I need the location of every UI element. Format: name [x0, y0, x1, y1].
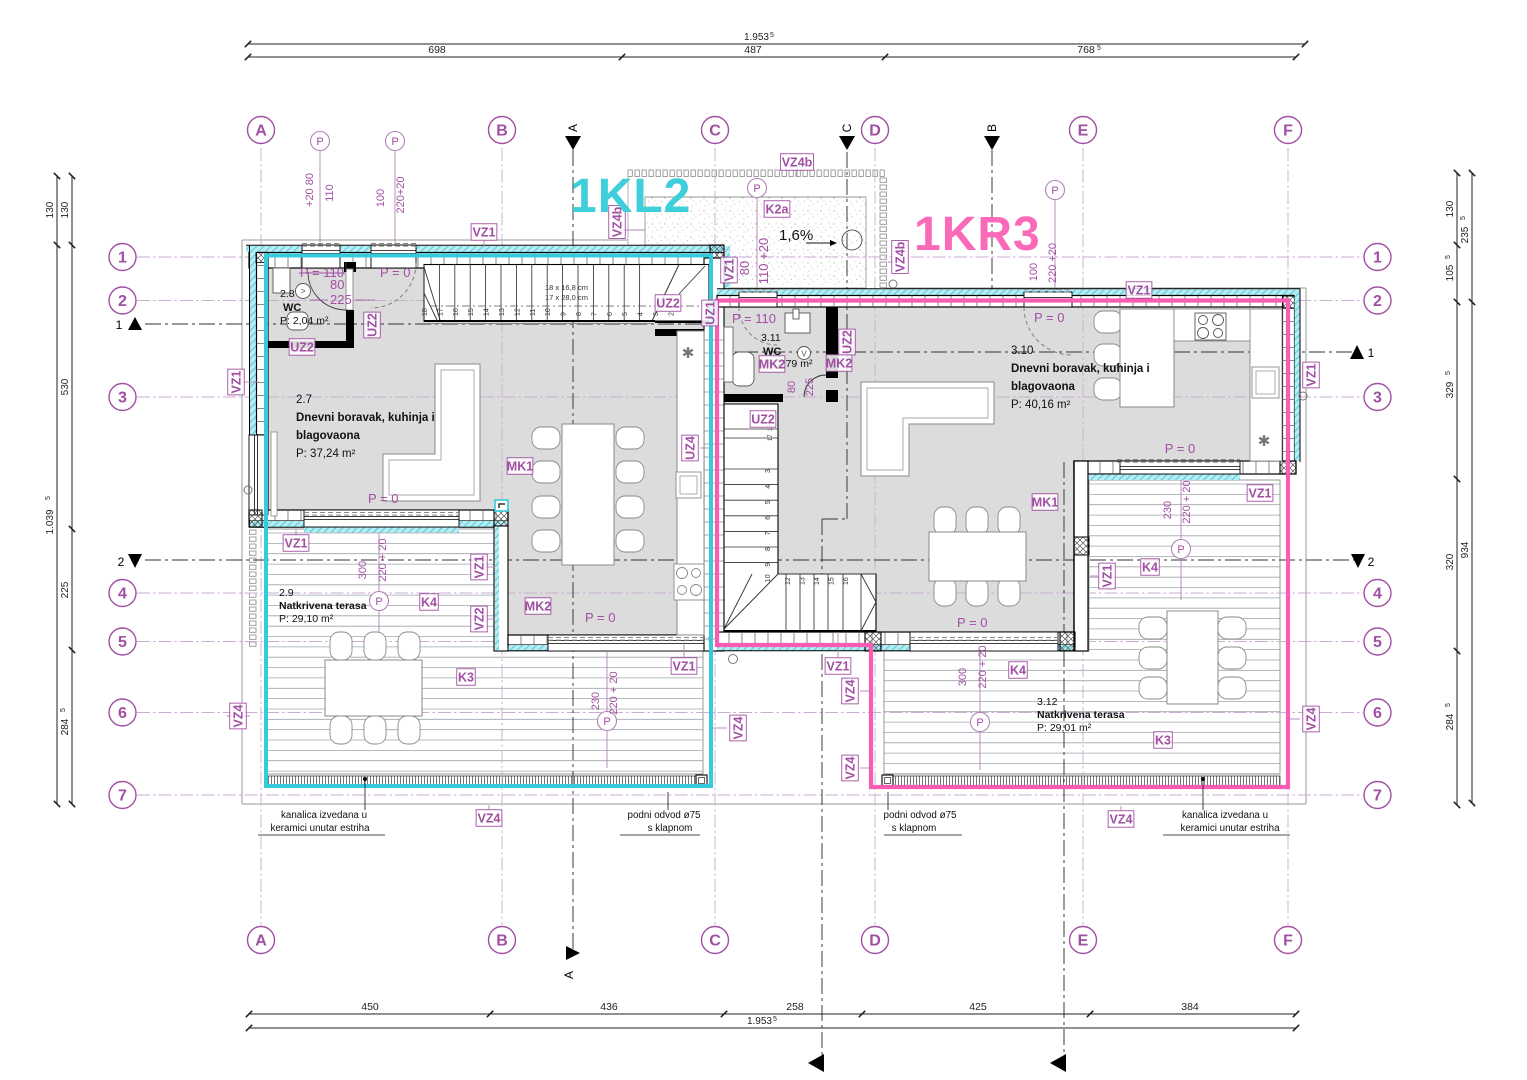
svg-text:8: 8: [576, 312, 583, 316]
svg-text:7: 7: [765, 531, 772, 535]
svg-text:P: P: [753, 183, 760, 195]
svg-text:blagovaona: blagovaona: [1011, 381, 1076, 393]
svg-text:1.953: 1.953: [747, 1016, 772, 1027]
svg-text:P = 110: P = 110: [732, 311, 776, 326]
svg-text:220 +20: 220 +20: [1047, 243, 1059, 283]
svg-text:VZ1: VZ1: [723, 258, 737, 281]
svg-text:5: 5: [1460, 216, 1467, 220]
svg-text:5: 5: [45, 496, 52, 500]
svg-text:K4: K4: [421, 596, 437, 610]
svg-text:P: P: [1051, 185, 1058, 197]
svg-text:5: 5: [60, 708, 67, 712]
svg-text:18: 18: [422, 308, 429, 316]
svg-text:7: 7: [1373, 788, 1382, 805]
svg-text:2.7: 2.7: [296, 394, 312, 406]
svg-text:UZ2: UZ2: [290, 341, 314, 355]
svg-text:2: 2: [118, 555, 125, 569]
svg-text:VZ1: VZ1: [827, 660, 850, 674]
svg-text:530: 530: [60, 378, 71, 395]
svg-text:K3: K3: [458, 671, 474, 685]
svg-text:WC: WC: [283, 302, 301, 314]
svg-text:3.10: 3.10: [1011, 345, 1033, 357]
svg-text:225: 225: [804, 378, 816, 396]
svg-text:E: E: [1078, 933, 1089, 950]
svg-text:P: 29,01 m²: P: 29,01 m²: [1037, 722, 1092, 734]
svg-text:110: 110: [324, 184, 336, 202]
svg-text:5: 5: [1373, 634, 1382, 651]
svg-text:100: 100: [375, 189, 387, 207]
svg-text:VZ4: VZ4: [844, 756, 858, 779]
svg-text:+20 80: +20 80: [304, 173, 316, 207]
svg-text:P = 0: P = 0: [368, 491, 398, 506]
svg-text:220 + 20: 220 + 20: [377, 538, 389, 581]
svg-text:15: 15: [468, 308, 475, 316]
svg-text:105: 105: [1445, 264, 1456, 281]
svg-text:225: 225: [330, 292, 352, 307]
svg-text:podni odvod ø75: podni odvod ø75: [628, 810, 702, 821]
svg-text:1: 1: [1373, 250, 1382, 267]
svg-text:768: 768: [1077, 44, 1095, 56]
svg-text:K4: K4: [1010, 664, 1026, 678]
svg-text:80: 80: [786, 381, 798, 393]
svg-text:5: 5: [765, 500, 772, 504]
svg-text:14: 14: [814, 577, 821, 585]
svg-text:✱: ✱: [1258, 433, 1271, 450]
svg-text:s klapnom: s klapnom: [892, 823, 937, 834]
svg-text:K3: K3: [1155, 734, 1171, 748]
svg-text:VZ4: VZ4: [232, 704, 246, 727]
svg-text:MK1: MK1: [1032, 496, 1058, 510]
svg-text:D: D: [869, 123, 881, 140]
svg-text:5: 5: [118, 634, 127, 651]
svg-text:Dnevni boravak, kuhinja i: Dnevni boravak, kuhinja i: [296, 412, 435, 424]
svg-text:VZ4: VZ4: [478, 812, 501, 826]
svg-text:225: 225: [60, 581, 71, 598]
svg-text:10: 10: [545, 308, 552, 316]
svg-text:MK2: MK2: [525, 600, 551, 614]
svg-text:VZ1: VZ1: [1249, 487, 1272, 501]
svg-text:320: 320: [1445, 553, 1456, 570]
svg-text:5: 5: [770, 32, 774, 39]
svg-text:1: 1: [1368, 346, 1375, 360]
svg-text:7: 7: [591, 312, 598, 316]
svg-text:100: 100: [1028, 263, 1040, 281]
svg-text:16: 16: [453, 308, 460, 316]
svg-text:B: B: [496, 123, 508, 140]
svg-text:A: A: [566, 124, 580, 132]
svg-text:VZ1: VZ1: [473, 226, 496, 240]
svg-text:MK1: MK1: [507, 460, 533, 474]
svg-text:A: A: [255, 123, 267, 140]
svg-text:18 x 16,8 cm: 18 x 16,8 cm: [545, 283, 588, 292]
svg-text:keramici unutar estriha: keramici unutar estriha: [270, 823, 370, 834]
svg-text:11: 11: [530, 309, 537, 316]
svg-text:6: 6: [765, 516, 772, 520]
svg-text:K2a: K2a: [766, 203, 790, 217]
svg-text:1KR3: 1KR3: [914, 208, 1041, 261]
svg-text:284: 284: [1445, 713, 1456, 730]
svg-text:P: 40,16 m²: P: 40,16 m²: [1011, 399, 1071, 411]
svg-text:1.039: 1.039: [45, 509, 56, 534]
svg-text:3: 3: [765, 469, 772, 473]
svg-text:P = 0: P = 0: [1034, 310, 1064, 325]
svg-text:3: 3: [653, 312, 660, 316]
svg-text:3: 3: [118, 390, 127, 407]
svg-text:A: A: [562, 971, 576, 979]
svg-text:487: 487: [744, 44, 762, 56]
svg-text:698: 698: [428, 44, 446, 56]
svg-text:P: P: [976, 717, 983, 729]
svg-text:P: P: [391, 136, 398, 148]
svg-text:5: 5: [1097, 45, 1101, 52]
svg-text:450: 450: [361, 1001, 379, 1013]
svg-text:VZ4: VZ4: [844, 679, 858, 702]
svg-text:2.9: 2.9: [279, 587, 294, 599]
svg-text:7: 7: [118, 788, 127, 805]
svg-text:P: P: [1177, 544, 1184, 556]
svg-text:Natkrivena terasa: Natkrivena terasa: [1037, 709, 1125, 721]
svg-text:VZ1: VZ1: [1305, 363, 1319, 386]
svg-text:A: A: [255, 933, 267, 950]
svg-text:110 +20: 110 +20: [756, 238, 771, 284]
svg-text:1,6%: 1,6%: [779, 227, 813, 244]
svg-text:UZ2: UZ2: [841, 330, 855, 354]
svg-text:80: 80: [737, 261, 752, 275]
svg-text:13: 13: [800, 577, 807, 585]
svg-text:P: P: [603, 716, 610, 728]
svg-text:P = 0: P = 0: [380, 265, 410, 280]
svg-text:MK2: MK2: [759, 358, 785, 372]
svg-text:P: P: [375, 596, 382, 608]
svg-text:>: >: [300, 286, 305, 296]
svg-text:6: 6: [1373, 705, 1382, 722]
svg-text:UZ2: UZ2: [656, 297, 680, 311]
svg-text:C: C: [709, 933, 721, 950]
svg-text:4: 4: [1373, 586, 1382, 603]
svg-text:425: 425: [969, 1001, 987, 1013]
svg-text:E: E: [1078, 123, 1089, 140]
svg-text:P: 37,24 m²: P: 37,24 m²: [296, 448, 356, 460]
svg-text:F: F: [1283, 933, 1293, 950]
svg-text:blagovaona: blagovaona: [296, 430, 361, 442]
svg-text:P: P: [316, 136, 323, 148]
svg-text:VZ4: VZ4: [1110, 813, 1133, 827]
svg-text:MK2: MK2: [826, 357, 852, 371]
svg-text:220 + 20: 220 + 20: [608, 671, 620, 714]
svg-text:keramici unutar estriha: keramici unutar estriha: [1180, 823, 1280, 834]
svg-text:5: 5: [1445, 255, 1452, 259]
svg-text:C: C: [709, 123, 721, 140]
svg-text:2: 2: [118, 293, 127, 310]
svg-text:220+20: 220+20: [395, 176, 407, 213]
svg-text:UZ1: UZ1: [704, 301, 718, 325]
svg-text:3.12: 3.12: [1037, 696, 1058, 708]
svg-text:VZ1: VZ1: [230, 370, 244, 393]
svg-text:12: 12: [785, 577, 792, 585]
svg-text:D: D: [869, 933, 881, 950]
svg-text:13: 13: [499, 308, 506, 316]
svg-text:300: 300: [957, 668, 969, 686]
svg-text:✱: ✱: [682, 345, 695, 362]
svg-text:VZ4b: VZ4b: [894, 241, 908, 272]
svg-text:VZ1: VZ1: [1128, 284, 1151, 298]
svg-text:220 + 20: 220 + 20: [1181, 480, 1193, 523]
svg-text:VZ1: VZ1: [285, 537, 308, 551]
svg-text:P: 2,04 m²: P: 2,04 m²: [280, 315, 329, 327]
svg-text:258: 258: [786, 1001, 804, 1013]
svg-text:384: 384: [1181, 1001, 1199, 1013]
svg-text:B: B: [496, 933, 508, 950]
svg-text:UZ2: UZ2: [751, 413, 775, 427]
svg-text:130: 130: [1445, 200, 1456, 217]
svg-text:5: 5: [1445, 371, 1452, 375]
svg-text:3.11: 3.11: [761, 332, 781, 344]
svg-text:2: 2: [1368, 555, 1375, 569]
svg-text:6: 6: [607, 312, 614, 316]
svg-text:P = 0: P = 0: [957, 615, 987, 630]
svg-text:12: 12: [514, 308, 521, 316]
svg-text:3: 3: [1373, 390, 1382, 407]
svg-text:VZ1: VZ1: [673, 660, 696, 674]
svg-text:4: 4: [118, 586, 127, 603]
svg-text:F: F: [1283, 123, 1293, 140]
svg-text:5: 5: [622, 312, 629, 316]
svg-text:podni odvod ø75: podni odvod ø75: [884, 810, 958, 821]
svg-text:UZ4: UZ4: [684, 436, 698, 460]
svg-text:P: 29,10 m²: P: 29,10 m²: [279, 613, 334, 625]
svg-text:14: 14: [484, 308, 491, 316]
svg-text:B: B: [985, 124, 999, 132]
svg-text:130: 130: [60, 201, 71, 218]
svg-text:80: 80: [330, 277, 344, 292]
svg-text:kanalica izvedana u: kanalica izvedana u: [1182, 810, 1268, 821]
svg-text:9: 9: [765, 563, 772, 567]
svg-text:Dnevni boravak, kuhinja i: Dnevni boravak, kuhinja i: [1011, 363, 1150, 375]
svg-text:934: 934: [1460, 541, 1471, 558]
svg-text:1: 1: [118, 250, 127, 267]
svg-text:2: 2: [668, 312, 675, 316]
svg-text:5: 5: [773, 1016, 777, 1023]
svg-text:VZ4: VZ4: [1305, 707, 1319, 730]
svg-text:kanalica izvedana u: kanalica izvedana u: [281, 810, 367, 821]
svg-text:130: 130: [45, 201, 56, 218]
svg-text:2: 2: [1373, 293, 1382, 310]
svg-text:1: 1: [116, 318, 123, 332]
svg-text:16: 16: [843, 577, 850, 585]
svg-text:K4: K4: [1142, 561, 1158, 575]
svg-text:17: 17: [768, 434, 774, 441]
svg-text:230: 230: [1162, 501, 1174, 519]
svg-text:P = 0: P = 0: [585, 610, 615, 625]
svg-text:230: 230: [590, 692, 602, 710]
svg-text:VZ4b: VZ4b: [782, 156, 813, 170]
svg-text:17: 17: [437, 308, 444, 316]
svg-text:4: 4: [765, 485, 772, 489]
svg-text:1.953: 1.953: [744, 32, 769, 43]
svg-text:VZ4: VZ4: [732, 716, 746, 739]
svg-text:UZ2: UZ2: [366, 313, 380, 337]
svg-text:6: 6: [118, 705, 127, 722]
svg-text:17 x 28,0 cm: 17 x 28,0 cm: [545, 293, 588, 302]
svg-text:VZ2: VZ2: [473, 607, 487, 630]
svg-text:300: 300: [357, 561, 369, 579]
svg-text:284: 284: [60, 718, 71, 735]
svg-text:s klapnom: s klapnom: [648, 823, 693, 834]
svg-text:1KL2: 1KL2: [570, 170, 691, 223]
svg-text:5: 5: [1445, 703, 1452, 707]
svg-text:220 + 20: 220 + 20: [977, 645, 989, 688]
svg-text:Natkrivena terasa: Natkrivena terasa: [279, 600, 367, 612]
svg-text:8: 8: [765, 547, 772, 551]
svg-text:436: 436: [600, 1001, 618, 1013]
svg-text:P = 0: P = 0: [1165, 441, 1195, 456]
svg-text:329: 329: [1445, 381, 1456, 398]
svg-text:VZ1: VZ1: [473, 555, 487, 578]
svg-text:15: 15: [829, 577, 836, 585]
svg-text:235: 235: [1460, 226, 1471, 243]
svg-text:4: 4: [638, 312, 645, 316]
svg-text:9: 9: [561, 312, 568, 316]
svg-text:C: C: [840, 123, 854, 132]
svg-text:2.8: 2.8: [280, 288, 295, 300]
svg-text:VZ1: VZ1: [1101, 564, 1115, 587]
